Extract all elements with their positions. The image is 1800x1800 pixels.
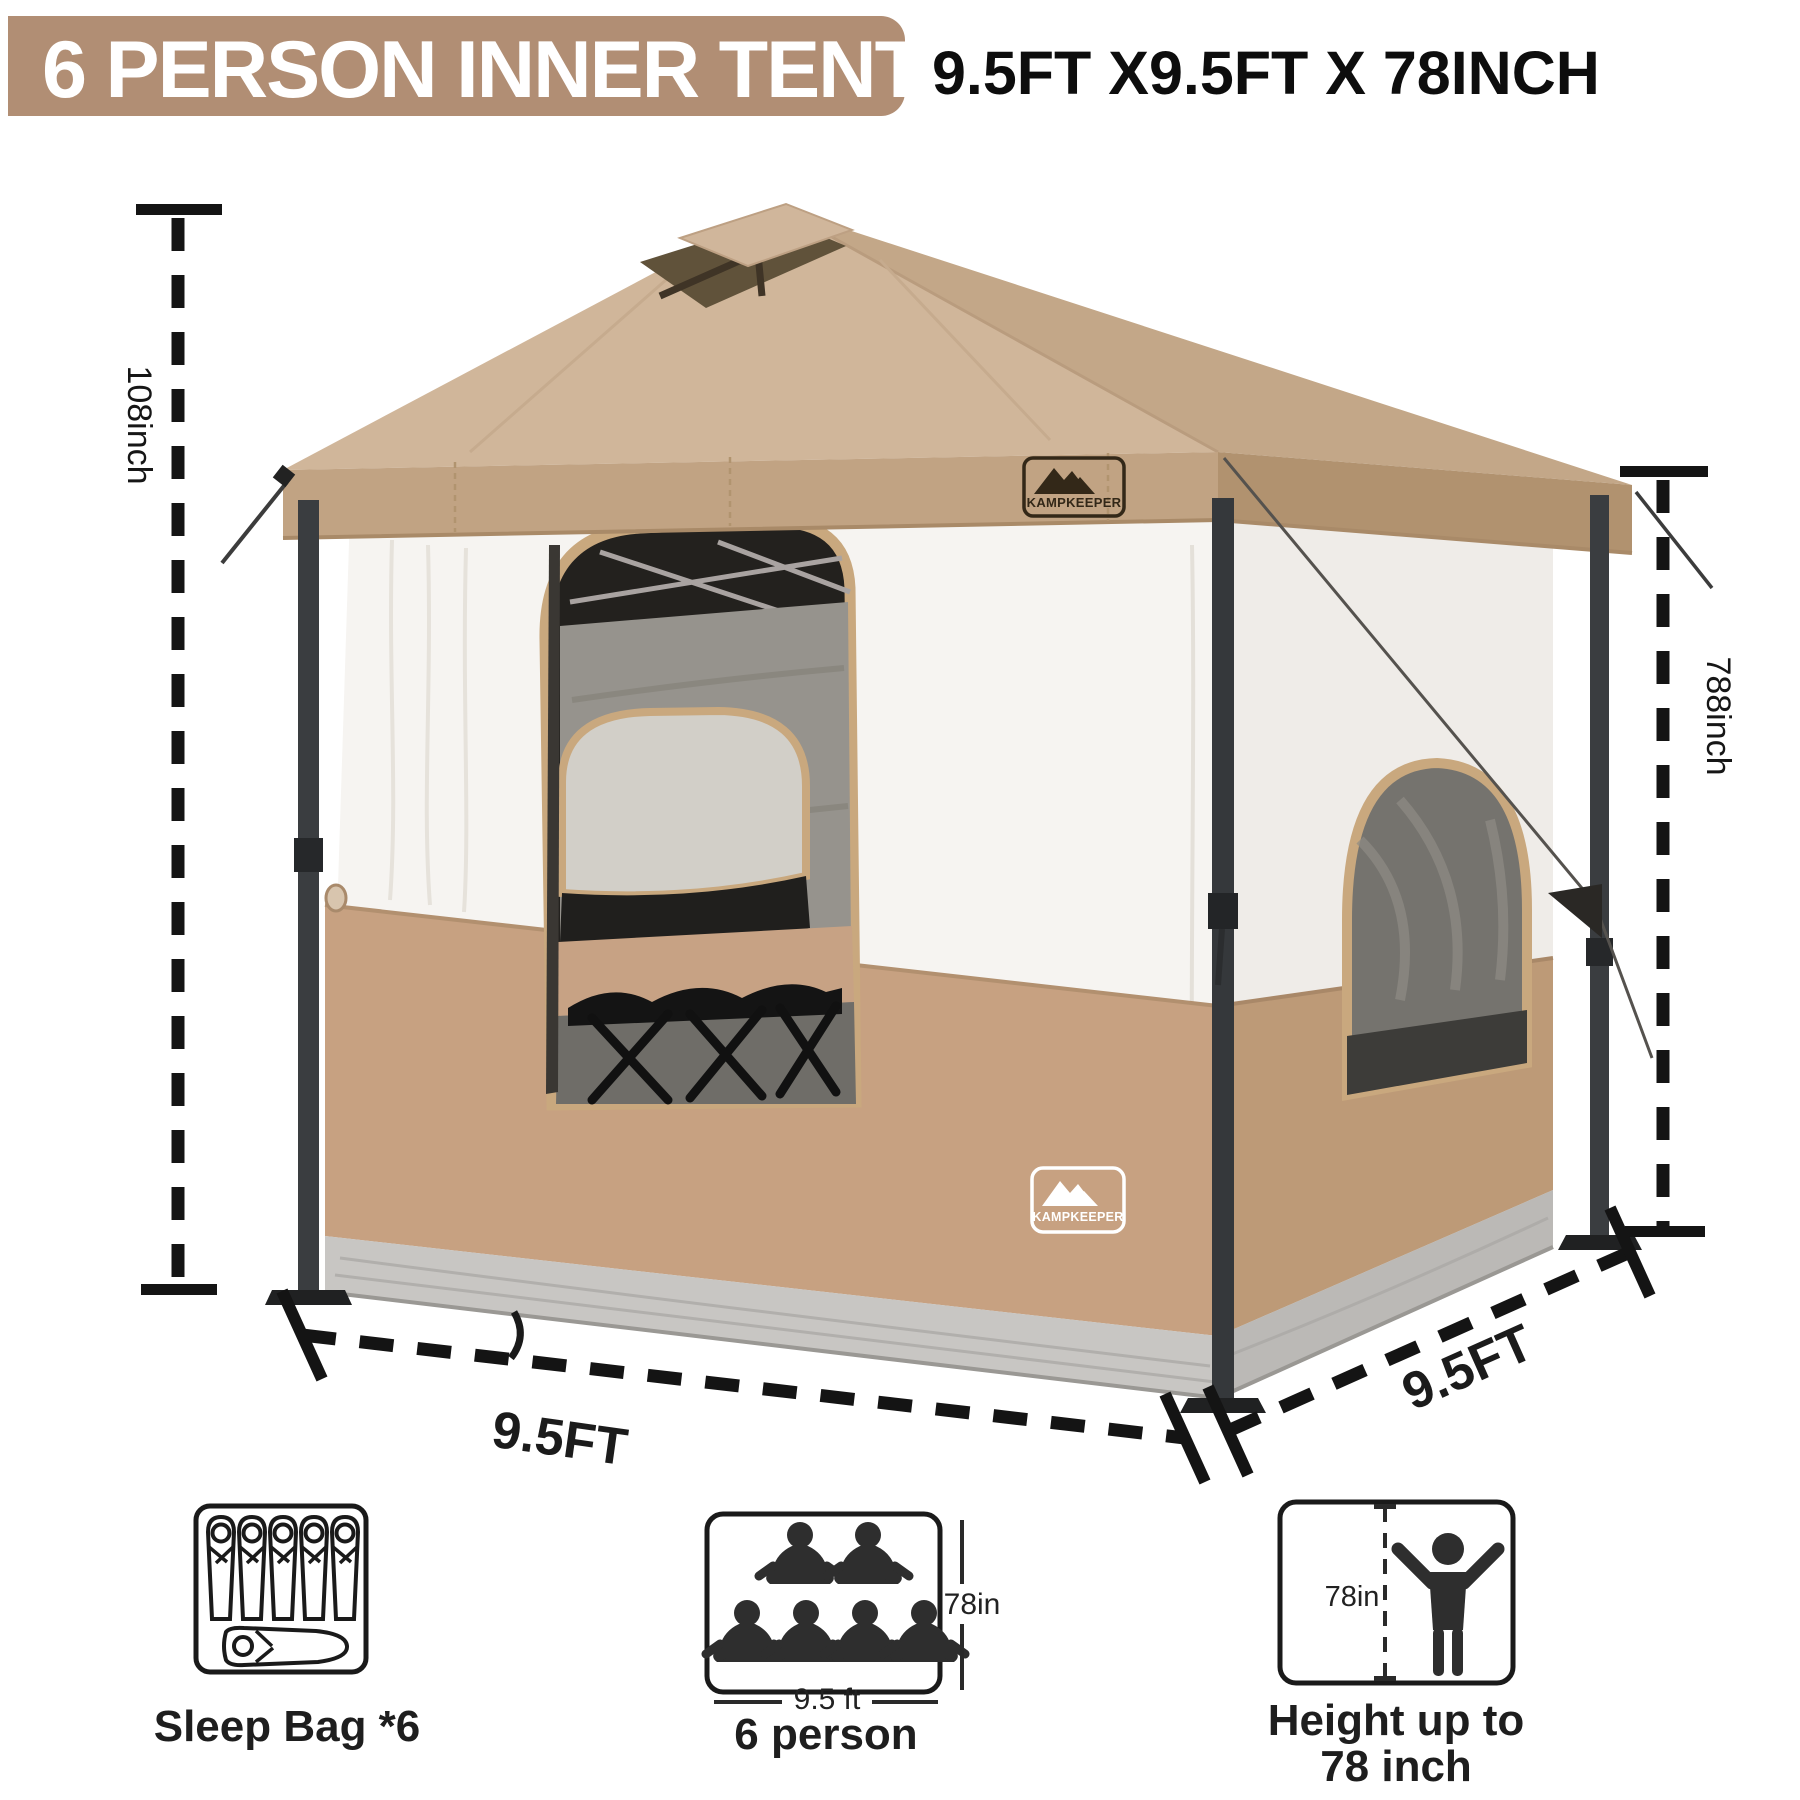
canopy xyxy=(283,204,1632,553)
dim-label-canopy-height: 108inch xyxy=(118,350,158,500)
sleep-bag-icon xyxy=(196,1506,366,1672)
pole-front-left xyxy=(298,500,319,1295)
capacity-label: 6 person xyxy=(626,1713,1026,1757)
guy-rope-left xyxy=(222,482,287,563)
standing-height-note: 78in xyxy=(1292,1581,1412,1614)
guy-rope-right xyxy=(1636,492,1712,588)
standing-height-label-1: Height up to xyxy=(1196,1699,1596,1743)
overall-size-text: 9.5FT X9.5FT X 78INCH xyxy=(932,38,1732,108)
dimension-line-height-right xyxy=(1620,466,1708,1237)
wall-logo-text: KAMPKEEPER xyxy=(1028,1210,1128,1224)
canopy-logo-text: KAMPKEEPER xyxy=(1024,495,1124,510)
side-window xyxy=(1347,763,1527,1095)
inner-window xyxy=(562,711,806,895)
capacity-height-note: 78in xyxy=(912,1588,1032,1622)
standing-height-label-2: 78 inch xyxy=(1196,1745,1596,1789)
pole-rear-right xyxy=(1590,495,1609,1245)
dim-label-inner-height: 788inch xyxy=(1697,641,1737,791)
door-opening xyxy=(545,522,856,1105)
page-title: 6 PERSON INNER TENT xyxy=(42,24,902,117)
foot-front-left xyxy=(265,1290,352,1305)
sleep-bag-label: Sleep Bag *6 xyxy=(87,1705,487,1749)
tent-illustration xyxy=(0,0,1800,1800)
